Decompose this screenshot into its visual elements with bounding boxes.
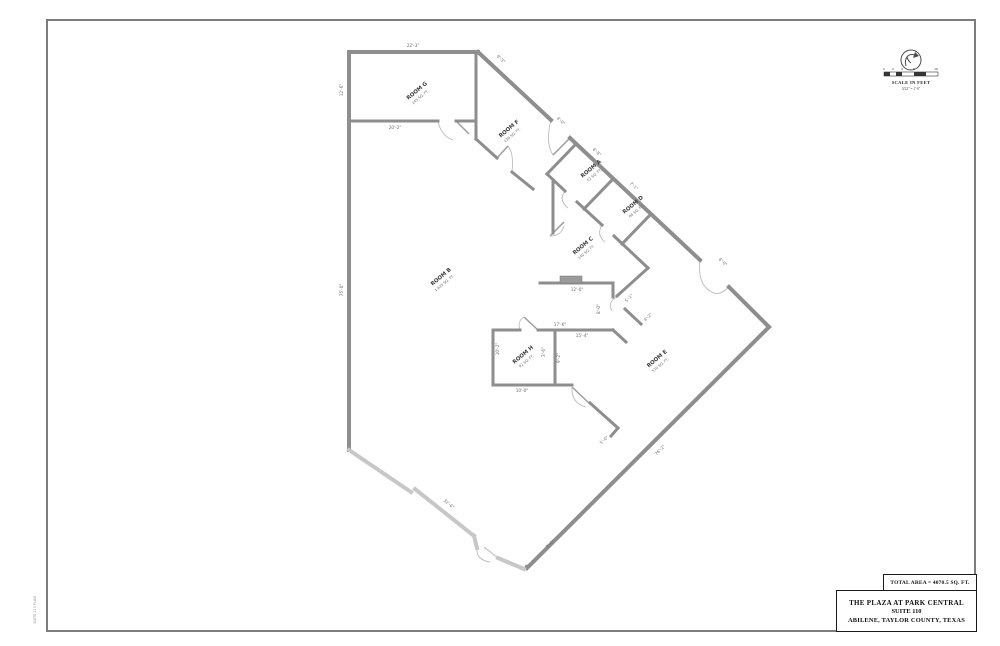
floor-plan-canvas: SUITE 110 PLAN — [0, 0, 1000, 646]
scale-tick: 8 — [913, 67, 915, 71]
dim: 76'-2" — [654, 444, 666, 456]
dim: 12'-0" — [571, 287, 584, 292]
scale-tick: 16 — [934, 67, 938, 71]
dim: 15'-4" — [576, 333, 589, 338]
dim: 6'-8" — [592, 147, 603, 157]
dim: 3'-6" — [541, 347, 546, 357]
north-arrow-icon — [901, 50, 921, 70]
sheet-border — [47, 20, 975, 631]
scale-ratio: 3/32" = 1'-0" — [902, 87, 921, 91]
scale-tick: 0 — [883, 67, 885, 71]
scale-block: 0 2 4 8 16 SCALE IN FEET 3/32" = 1'-0" — [883, 50, 938, 91]
dim: 22'-3" — [407, 43, 420, 48]
dim: 10'-2" — [495, 343, 500, 356]
scale-tick: 2 — [892, 67, 894, 71]
dim: 20'-2" — [389, 125, 402, 130]
dim: 6'-0" — [718, 257, 729, 267]
dim: 8'-0" — [596, 304, 601, 314]
dimension-labels: 22'-3" 9'-3" 12'-6" 20'-2" 75'-0" 32'-6"… — [339, 43, 728, 549]
dim: 17'-6" — [554, 322, 567, 327]
scale-tick: 4 — [901, 67, 903, 71]
dim: 5'-1" — [624, 293, 635, 304]
dim: 9'-2" — [556, 353, 561, 363]
dim: 5'-0" — [599, 435, 610, 445]
drawing-sheet: SUITE 110 PLAN — [0, 0, 1000, 646]
dim: 7'-1" — [629, 181, 640, 191]
door-arcs — [438, 120, 729, 562]
counter-hatch — [560, 276, 582, 283]
title-block: THE PLAZA AT PARK CENTRAL SUITE 110 ABIL… — [836, 590, 977, 632]
dim: 12'-6" — [339, 84, 344, 97]
dim: 4'-2" — [643, 312, 654, 323]
interior-walls — [349, 52, 650, 436]
title-line-3: ABILENE, TAYLOR COUNTY, TEXAS — [848, 617, 965, 624]
dim: 10'-0" — [516, 388, 529, 393]
dim: 32'-6" — [442, 498, 455, 510]
dim: 9'-3" — [496, 54, 507, 64]
title-line-1: THE PLAZA AT PARK CENTRAL — [849, 599, 964, 607]
total-area-box: TOTAL AREA = 4070.5 SQ. FT. — [883, 574, 977, 591]
storefront-walls — [349, 450, 524, 569]
title-line-2: SUITE 110 — [891, 608, 921, 615]
margin-fine-print: SUITE 110 PLAN — [33, 596, 37, 624]
dim: 4'-0" — [556, 116, 567, 126]
dim: 75'-0" — [339, 284, 344, 297]
total-area-text: TOTAL AREA = 4070.5 SQ. FT. — [890, 580, 969, 586]
scale-title: SCALE IN FEET — [892, 80, 931, 85]
